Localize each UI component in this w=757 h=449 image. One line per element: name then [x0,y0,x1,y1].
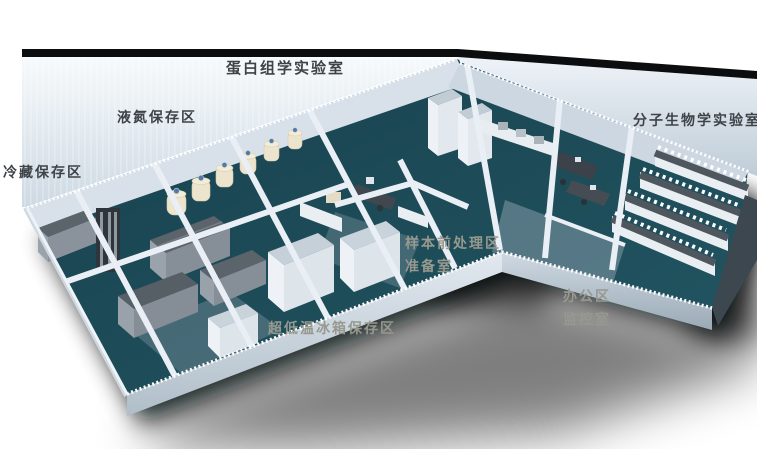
lab-floorplan-3d-render [0,0,757,449]
label-cold-storage-area: 冷藏保存区 [3,162,83,182]
label-ult-freezer-area: 超低温冰箱保存区 [268,318,396,338]
label-liquid-nitrogen-area: 液氮保存区 [117,107,197,127]
roof-edge-left [22,49,458,57]
label-prep-room: 准备室 [405,256,453,276]
label-monitor-room: 监控室 [563,309,611,329]
label-office-area: 办公区 [563,286,611,306]
label-molecular-biology-lab: 分子生物学实验室 [633,110,757,130]
label-sample-pretreatment: 样本前处理区 [405,233,501,253]
floorplan-canvas: 蛋白组学实验室 液氮保存区 冷藏保存区 分子生物学实验室 样本前处理区 准备室 … [0,0,757,449]
label-proteomics-lab: 蛋白组学实验室 [226,57,345,78]
